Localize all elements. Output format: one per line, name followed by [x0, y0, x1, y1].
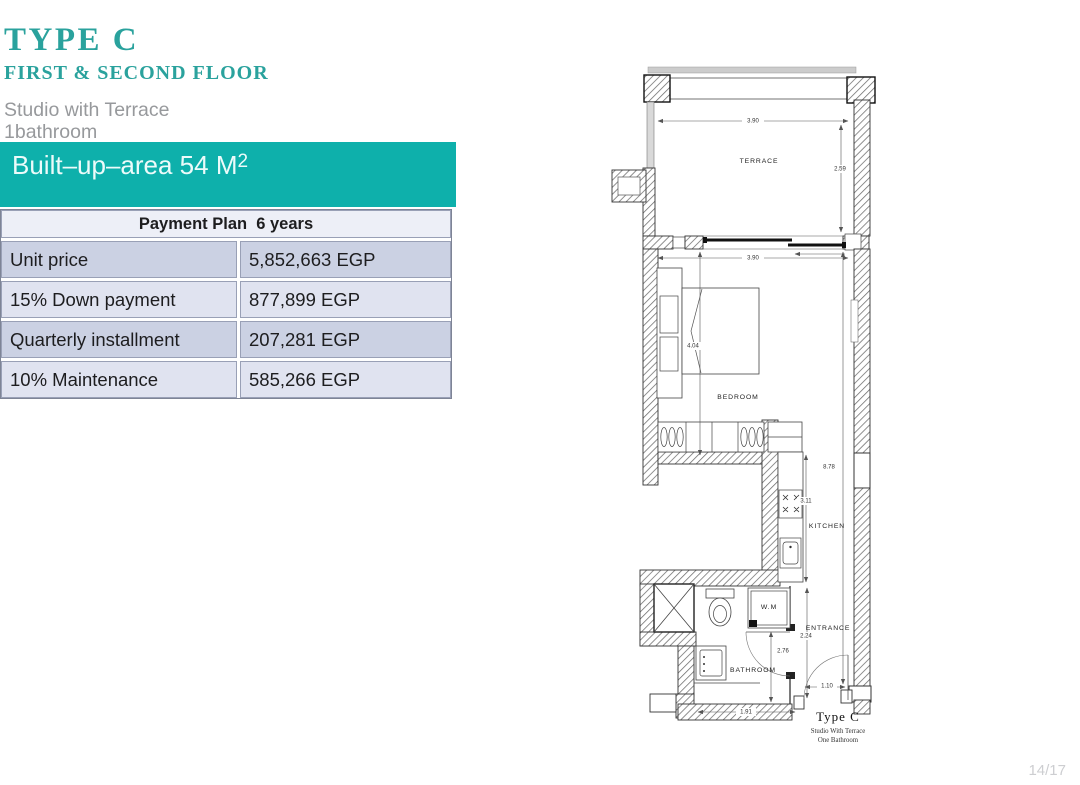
room-label-kitchen: KITCHEN [809, 523, 845, 530]
unit-description-line1: Studio with Terrace [4, 100, 470, 122]
dim-bedroom-width: 3.90 [747, 256, 759, 262]
table-row-label: 10% Maintenance [1, 361, 237, 398]
dim-entrance-length: 2.24 [800, 634, 812, 640]
payment-plan-table: Payment Plan 6 years Unit price 5,852,66… [0, 209, 452, 399]
plan-caption-title: Type C [816, 709, 860, 724]
unit-description: Studio with Terrace 1bathroom [4, 100, 470, 144]
table-row-value: 877,899 EGP [240, 281, 451, 318]
table-row-value: 5,852,663 EGP [240, 241, 451, 278]
wardrobe [658, 422, 764, 452]
table-row-value: 207,281 EGP [240, 321, 451, 358]
floor-plan: 3.90 2.59 3.90 4.04 3.11 8.78 2.24 2.76 … [590, 55, 910, 765]
plan-caption-line2: One Bathroom [818, 737, 859, 744]
table-row-value: 585,266 EGP [240, 361, 451, 398]
room-label-entrance: ENTRANCE [806, 625, 851, 632]
dim-total-depth: 8.78 [823, 465, 835, 471]
unit-description-line2: 1bathroom [4, 122, 470, 144]
plan-caption-line1: Studio With Terrace [811, 728, 866, 735]
payment-plan-header: Payment Plan 6 years [1, 210, 451, 238]
page-indicator: 14/17 [1028, 762, 1066, 779]
table-row-label: Unit price [1, 241, 237, 278]
bathroom-sink-icon [694, 646, 760, 683]
table-row-label: 15% Down payment [1, 281, 237, 318]
room-label-terrace: TERRACE [740, 158, 779, 165]
room-label-washing-machine: W.M [761, 604, 777, 611]
room-label-bathroom: BATHROOM [730, 667, 776, 674]
dim-terrace-width: 3.90 [747, 119, 759, 125]
dim-terrace-depth: 2.59 [834, 167, 846, 173]
built-up-area-banner: Built–up–area 54 M2 [0, 142, 456, 207]
built-up-area-superscript: 2 [237, 151, 248, 172]
table-row-label: Quarterly installment [1, 321, 237, 358]
plan-caption: Type C Studio With Terrace One Bathroom [811, 709, 866, 744]
dim-bathroom-width: 1.91 [740, 710, 752, 716]
built-up-area-text: Built–up–area 54 M [12, 150, 237, 180]
toilet-icon [706, 589, 734, 626]
page-title: TYPE C [4, 24, 470, 57]
shaft [654, 584, 694, 632]
room-label-bedroom: BEDROOM [717, 394, 758, 401]
dim-kitchen-length: 3.11 [800, 499, 812, 505]
dim-entry-door-width: 1.10 [821, 684, 833, 690]
sliding-door [700, 236, 846, 254]
unit-info-panel: TYPE C FIRST & SECOND FLOOR Studio with … [0, 0, 470, 144]
dim-bedroom-depth: 4.04 [687, 344, 699, 350]
floor-subtitle: FIRST & SECOND FLOOR [4, 63, 470, 83]
bed [657, 268, 759, 398]
dim-hall-length: 2.76 [777, 649, 789, 655]
